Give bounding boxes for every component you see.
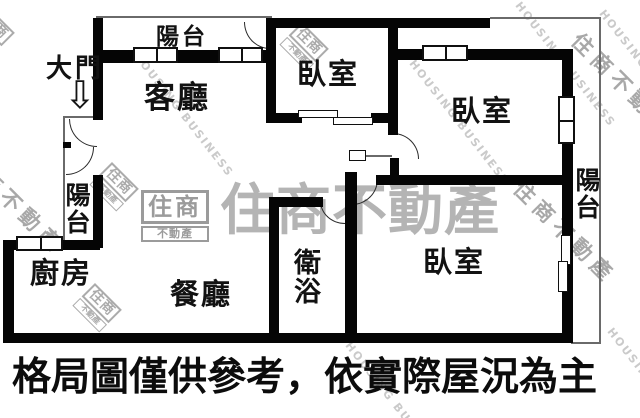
wall-bedroom-bottom-north <box>376 175 573 185</box>
label-bedroom-right: 臥室 <box>451 97 513 126</box>
door-leaf-hall <box>366 155 392 157</box>
window-bedroom-bottom-east-b <box>558 261 568 292</box>
balcony-right-outline-bottom <box>571 342 601 344</box>
wall-neighbor-top <box>398 18 490 28</box>
label-kitchen: 廚房 <box>30 259 92 288</box>
label-balcony-right: 陽台 <box>574 167 599 221</box>
disclaimer-text: 格局圖僅供參考，依實際屋況為主 <box>12 355 597 402</box>
entry-door-jamb <box>63 142 71 148</box>
label-bathroom: 衛浴 <box>291 248 318 306</box>
door-jamb-hall <box>349 150 366 161</box>
label-bedroom-top: 臥室 <box>297 60 359 89</box>
wall-bath-west <box>269 197 279 343</box>
label-dining-room: 餐廳 <box>170 280 232 309</box>
label-living-room: 客廳 <box>144 83 210 114</box>
watermark-en-6: HOUSING BUSINESS <box>605 326 640 418</box>
watermark-logo-center: 住商 不動產 <box>141 190 209 242</box>
sliding-door-bedroom-top-b <box>333 117 373 125</box>
label-balcony-left: 陽台 <box>64 182 89 236</box>
watermark-logo-main: 住商 <box>0 6 15 47</box>
balcony-top-outline <box>96 16 272 18</box>
window-kitchen <box>16 236 63 251</box>
window-bedroom-right-north <box>422 45 468 61</box>
watermark-logo-4: 住商 不動產 <box>0 6 15 56</box>
wall-bedroom-top-south-left <box>266 113 302 123</box>
sliding-door-bedroom-top-a <box>298 110 338 118</box>
wall-bedroom-top-north <box>266 18 398 28</box>
window-living-2 <box>218 47 263 63</box>
wall-bedroom-top-south-right <box>371 113 398 123</box>
wall-west <box>3 240 14 343</box>
label-balcony-top: 陽台 <box>156 26 208 49</box>
window-bedroom-right-east <box>558 96 575 144</box>
door-arc-bedroom-right <box>393 133 419 159</box>
door-arc-entry-inner <box>66 147 94 175</box>
main-door-arrow-icon: ⇩ <box>64 76 96 114</box>
floor-plan: 住商不動產 住商 不動產 HOUSING BUSINESS HOUSING BU… <box>0 0 640 418</box>
watermark-logo-1: 住商 不動產 <box>72 283 122 333</box>
wall-bedroom-top-west <box>266 18 276 123</box>
watermark-logo-sub: 不動產 <box>141 226 209 242</box>
watermark-logo-main: 住商 <box>141 190 209 224</box>
balcony-right-outline-top <box>490 17 601 19</box>
label-bedroom-bottom: 臥室 <box>423 248 485 277</box>
wall-living-west-lower <box>93 175 103 248</box>
door-arc-entry-outer <box>69 119 97 147</box>
wall-south <box>3 333 573 343</box>
wall-bath-bedroom-divider <box>345 172 357 343</box>
